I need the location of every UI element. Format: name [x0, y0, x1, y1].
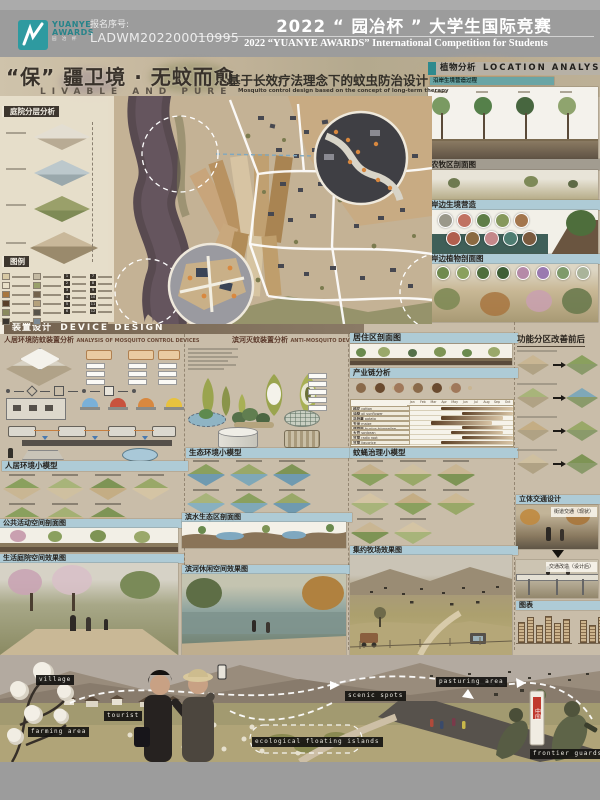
border-marker-text: 中国 [534, 707, 541, 721]
legend-item [33, 282, 61, 289]
layer-water-axon [34, 160, 90, 186]
legend-number-item: 6 [64, 308, 86, 315]
poster-subtitle-en: Mosquito control design based on the con… [238, 88, 449, 94]
industry-flow-node [432, 383, 442, 393]
living-device-cn: 人居环境防蚊装置分析 [4, 336, 74, 344]
pasture-render-photo [350, 555, 512, 655]
label-farming-area: farming area [28, 727, 89, 737]
poster-subtitle-cn: 基于长效疗法理念下的蚊虫防治设计 [228, 70, 428, 89]
legend-number-list: 123456789101112 [64, 272, 112, 320]
plant-photo-circle [436, 266, 450, 280]
legend-item [2, 282, 30, 289]
species-photo-circle [484, 231, 499, 246]
species-photo-circle [438, 213, 453, 228]
grid-dome-diagram [284, 410, 320, 427]
species-circles-row2 [446, 231, 537, 246]
species-photo-circle [522, 231, 537, 246]
model-tile [350, 518, 390, 544]
process-arrow-strip [6, 386, 136, 396]
legend-number-item: 1 [64, 273, 86, 280]
layer-courtyard-axon [30, 232, 98, 264]
industry-flow-node [413, 383, 423, 393]
master-plan-map [108, 96, 432, 324]
model-tile [393, 489, 433, 515]
month-label: Feb [418, 400, 429, 405]
poster-title-cn: “保” 疆卫境 · 无蚊而愈 [6, 61, 235, 90]
species-photo-circle [446, 231, 461, 246]
logo-line2: AWARDS [52, 29, 94, 37]
riverside-render-header: 滨河休闲空间效果图 [182, 565, 352, 574]
traffic-after-photo: 交通改造（设计后） [516, 560, 598, 598]
model-tile [436, 460, 476, 486]
cylinder-structure [218, 430, 258, 448]
flow-node [86, 350, 112, 360]
tree-sections-panel [428, 87, 598, 159]
species-photo-circle [457, 213, 472, 228]
legend-item [2, 291, 30, 298]
striped-cylinder [284, 430, 320, 448]
bar [563, 619, 570, 643]
farm-panorama [428, 170, 598, 200]
month-label: Jun [460, 400, 471, 405]
bottom-panorama: 中国 village tourist farming area ecologic… [0, 655, 600, 762]
model-tile [131, 474, 171, 500]
mosquito-lamp [80, 398, 100, 410]
water-lens [122, 448, 158, 462]
model-tile [272, 489, 312, 515]
legend-number-item: 10 [90, 294, 112, 301]
month-label: Mar [428, 400, 439, 405]
crop-calendar-gantt: JanFebMarAprMayJunJulAugSepOct 棉花 cotton… [350, 399, 514, 447]
tree-figure [434, 91, 448, 139]
layer-plants-axon [34, 196, 90, 222]
model-tile [272, 460, 312, 486]
label-village: village [36, 675, 74, 685]
before-after-row [517, 449, 599, 474]
traffic-current-photo: 街道交通（现状） [516, 505, 598, 549]
down-arrow-icon [552, 550, 564, 558]
flow-node [128, 350, 154, 360]
water-channel [22, 440, 172, 446]
industry-flow-node [394, 383, 404, 393]
legend-number-item: 4 [64, 294, 86, 301]
shore-habitat-panel [428, 210, 598, 254]
plaza-detail-callout [169, 244, 253, 324]
header-top-strip [0, 0, 600, 10]
floating-island-diagram [188, 412, 226, 427]
mosquito-lamp-row [80, 398, 184, 410]
logo-cn: 园 冶 杯 [52, 38, 94, 43]
model-tile [88, 474, 128, 500]
plant-analysis-title-cn: 植物分析 [440, 63, 476, 73]
traffic-3d-header: 立体交通设计 [516, 495, 600, 504]
legend-item [2, 318, 30, 325]
tree-figure [476, 91, 490, 139]
device-band-en: DEVICE DESIGN [60, 323, 164, 333]
model-tile [2, 474, 42, 500]
industry-flow-node [451, 383, 461, 393]
species-photo-circle [495, 213, 510, 228]
road-section [22, 450, 64, 460]
plant-analysis-header: 植物分析 LOCATION ANALYSIS [428, 62, 600, 75]
residential-section-strip [350, 344, 512, 365]
legend-number-item: 12 [90, 308, 112, 315]
living-device-en: ANALYSIS OF MOSQUITO CONTROL DEVICES [76, 338, 199, 344]
bar [589, 625, 596, 643]
bar [545, 616, 552, 643]
legend-swatch-column-a [2, 272, 30, 320]
flow-subitems [86, 362, 105, 386]
traffic-after-label: 交通改造（设计后） [546, 562, 597, 572]
flow-node [158, 350, 180, 360]
selfie-tourists-figures [126, 657, 238, 762]
river-device-cn: 滨河灭蚊装置分析 [232, 336, 288, 344]
label-pasturing-area: pasturing area [436, 677, 507, 687]
mosquito-lamp [164, 398, 184, 410]
layer-roof-axon [34, 124, 90, 150]
month-label: Oct [502, 400, 513, 405]
logo-wordmark: YUANYE AWARDS 园 冶 杯 [52, 21, 94, 43]
left-analysis-panel: 庭院分层分析 图例 123456789101112 [0, 96, 114, 322]
bottom-gray-margin [0, 762, 600, 800]
bar [518, 622, 525, 643]
header-bar: YUANYE AWARDS 园 冶 杯 报名序号: LADWM202200010… [0, 0, 600, 57]
competition-poster: YUANYE AWARDS 园 冶 杯 报名序号: LADWM202200010… [0, 0, 600, 800]
header-divider-line [196, 36, 594, 37]
species-photo-circle [465, 231, 480, 246]
mosquito-device-diagrams [2, 346, 182, 458]
label-ecological-floating-islands: ecological floating islands [252, 737, 383, 747]
competition-title-cn: 2022 “ 园冶杯 ” 大学生国际竞赛 [228, 13, 600, 37]
courtyard-render-header: 生活庭院空间效果图 [0, 554, 184, 563]
plant-photo-circle [536, 266, 550, 280]
tree-figure [518, 91, 532, 139]
living-device-subheader: 人居环境防蚊装置分析 ANALYSIS OF MOSQUITO CONTROL … [4, 335, 200, 345]
model-mosquito-header: 蚊蝇治理小模型 [350, 448, 518, 458]
label-frontier-guards: frontier guards [530, 749, 600, 759]
mini-charts-panel [516, 613, 598, 644]
poster-title-en: LIVABLE AND PURE [40, 87, 232, 97]
waterfront-section-strip [182, 522, 346, 548]
water-system-box [8, 426, 36, 437]
waterfront-section-header: 滨水生态区剖面图 [182, 513, 352, 522]
plant-photo-circle [456, 266, 470, 280]
species-photo-circle [514, 213, 529, 228]
legend-item [2, 273, 30, 280]
model-tile [393, 460, 433, 486]
mosquito-lamp [136, 398, 156, 410]
water-system-box [152, 426, 176, 437]
industry-flow-diagram [350, 380, 518, 396]
model-eco-header: 生态环境小模型 [186, 448, 352, 458]
model-living-header: 人居环境小模型 [2, 461, 188, 471]
before-after-row [517, 383, 599, 408]
courtyard-analysis-title: 庭院分层分析 [2, 106, 59, 117]
model-tile [436, 489, 476, 515]
competition-title-en: 2022 “YUANYE AWARDS” International Compe… [196, 38, 596, 49]
before-after-row [517, 416, 599, 441]
before-after-row [517, 350, 599, 375]
plant-analysis-title-en: LOCATION ANALYSIS [483, 63, 600, 73]
layer-connector [92, 122, 93, 262]
legend-number-item: 9 [90, 287, 112, 294]
water-system-box [58, 426, 86, 437]
plant-photo-circle [476, 266, 490, 280]
island-cluster [232, 408, 276, 428]
legend-item [33, 273, 61, 280]
legend-swatch-column-b [33, 272, 61, 320]
model-tile [350, 460, 390, 486]
legend-number-item: 2 [64, 280, 86, 287]
legend-item [33, 291, 61, 298]
cotton-plant [0, 655, 92, 762]
species-photo-circle [503, 231, 518, 246]
shore-habitat-header: 岸边生境营造 [428, 200, 600, 210]
industry-chain-header: 产业链分析 [350, 368, 518, 378]
river-device-subheader: 滨河灭蚊装置分析 ANTI-MOSQUITO DEVICE [232, 335, 359, 345]
zoning-header: 功能分区改善前后 [517, 333, 585, 347]
bar [580, 620, 587, 643]
model-tile [45, 474, 85, 500]
courtyard-render-photo [0, 563, 178, 655]
river-device-diagrams [188, 346, 346, 446]
building-elevation [6, 398, 66, 420]
mosquito-lamp [108, 398, 128, 410]
shore-plants-panel [428, 264, 598, 322]
model-tile [229, 489, 269, 515]
residential-section-header: 居住区剖面图 [350, 333, 518, 343]
model-tile [393, 518, 433, 544]
species-circles-row1 [438, 213, 529, 228]
legend-number-item: 3 [64, 287, 86, 294]
section-trees [434, 91, 574, 139]
legend-number-item: 8 [90, 280, 112, 287]
charts-header: 图表 [516, 601, 600, 610]
plant-photo-circle [556, 266, 570, 280]
month-label: Sep [492, 400, 503, 405]
plant-photo-circle [576, 266, 590, 280]
pasture-render-header: 集约牧场效果图 [350, 546, 518, 555]
mosquito-model-tiles [350, 460, 514, 544]
riparian-process-subheader: 沿岸生境营造过程 [430, 77, 554, 85]
tree-figure [560, 91, 574, 139]
shore-plants-header: 岸边植物剖面图 [428, 254, 600, 264]
gantt-rows: 棉花 cotton 油葵 oil sunflower 马铃薯 potato 玉米… [351, 406, 513, 445]
registration-label: 报名序号: [90, 17, 239, 30]
legend-item [2, 300, 30, 307]
legend-number-item: 11 [90, 301, 112, 308]
industry-flow-node [375, 383, 385, 393]
plant-photo-circle [496, 266, 510, 280]
legend-panel: 123456789101112 [2, 272, 112, 320]
zoning-before-after-rows [517, 348, 599, 482]
species-photo-circle [476, 213, 491, 228]
month-label: Jul [471, 400, 482, 405]
mini-bar-chart-1 [516, 613, 572, 644]
yuanye-awards-logo-icon [18, 20, 48, 50]
riverside-render-photo [182, 574, 346, 655]
courtyard-layer-diagrams [6, 122, 110, 266]
plant-photo-circle [516, 266, 530, 280]
legend-number-item: 7 [90, 273, 112, 280]
farm-section-header: 农牧区剖面图 [428, 159, 600, 170]
bar [527, 617, 534, 643]
public-space-section-strip [0, 528, 178, 552]
model-tile [350, 489, 390, 515]
month-label: Aug [481, 400, 492, 405]
label-tourist: tourist [104, 711, 142, 721]
mini-bar-chart-2 [578, 613, 600, 644]
legend-number-item: 5 [64, 301, 86, 308]
industry-flow-node [356, 383, 366, 393]
legend-item [33, 309, 61, 316]
street-detail-callout [315, 112, 407, 204]
month-label: Apr [439, 400, 450, 405]
water-system-box [108, 426, 136, 437]
legend-item [2, 309, 30, 316]
plant-circles-row [436, 266, 590, 280]
month-label: Jan [407, 400, 418, 405]
label-scenic-spots: scenic spots [345, 691, 406, 701]
model-tile [186, 489, 226, 515]
legend-item [33, 300, 61, 307]
bar [536, 625, 543, 644]
traffic-current-label: 街道交通（现状） [551, 507, 597, 517]
month-label: May [449, 400, 460, 405]
crop-row: 甘草 liquorice [351, 440, 513, 445]
model-tile [186, 460, 226, 486]
bar [554, 623, 561, 643]
plant-header-accent [428, 62, 436, 75]
legend-title: 图例 [2, 256, 29, 267]
public-space-section-header: 公共活动空间剖面图 [0, 519, 184, 528]
person-figure [8, 448, 13, 458]
legend-item [33, 318, 61, 325]
model-tile [229, 460, 269, 486]
